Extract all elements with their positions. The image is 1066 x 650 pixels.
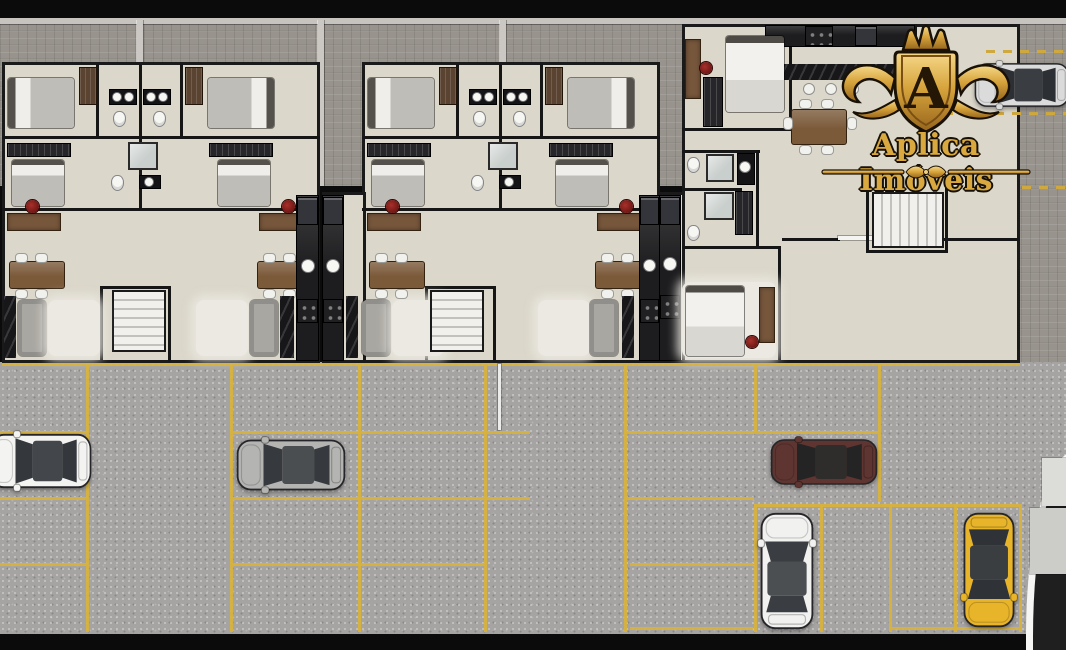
tv-panel: [346, 296, 358, 358]
fridge: [324, 198, 342, 224]
shower: [704, 192, 734, 220]
wall: [866, 188, 869, 252]
wall: [180, 64, 183, 139]
chair: [264, 254, 275, 262]
wall: [782, 238, 840, 241]
bed: [726, 36, 784, 112]
road-dash: [986, 50, 1066, 53]
tv-panel: [280, 296, 294, 358]
chair: [822, 100, 833, 108]
sofa: [250, 300, 278, 356]
closet-strip: [210, 144, 272, 156]
chair: [622, 254, 633, 262]
sofa: [590, 300, 618, 356]
bed: [686, 286, 744, 356]
bed: [568, 78, 634, 128]
wall: [362, 136, 660, 139]
stove: [661, 296, 679, 318]
wall: [2, 136, 320, 139]
stairs: [872, 192, 944, 248]
office-chair: [700, 62, 712, 74]
car-white-hatchback: [0, 430, 92, 492]
driveway-pad: [1042, 458, 1066, 506]
parking-line: [0, 563, 86, 566]
chair: [36, 290, 47, 298]
bed: [372, 160, 424, 206]
wall: [682, 246, 780, 249]
chair: [16, 254, 27, 262]
chair: [16, 290, 27, 298]
wardrobe: [704, 78, 722, 126]
wardrobe: [186, 68, 202, 104]
parking-line: [754, 504, 1019, 507]
parking-line: [230, 497, 530, 500]
shower: [706, 154, 734, 182]
parking-line: [624, 431, 878, 434]
road-dash: [1022, 186, 1066, 189]
sofa: [362, 300, 390, 356]
stove: [298, 300, 317, 322]
chair: [800, 146, 811, 154]
parking-line: [624, 497, 754, 500]
chair: [602, 290, 613, 298]
wall: [425, 286, 496, 289]
wall: [100, 286, 171, 289]
office-chair: [386, 200, 399, 213]
sofa: [18, 300, 46, 356]
rug: [196, 300, 248, 356]
dining-table: [10, 262, 64, 288]
toilet: [688, 226, 699, 240]
parking-line: [230, 563, 484, 566]
driveway-pad: [1030, 508, 1066, 574]
wardrobe: [546, 68, 562, 104]
wall: [96, 64, 99, 139]
parking-line: [0, 497, 86, 500]
wall: [139, 64, 142, 139]
toilet: [472, 176, 483, 190]
fridge: [661, 198, 679, 224]
bed: [12, 160, 64, 206]
stairs: [430, 290, 484, 352]
sink: [159, 93, 167, 101]
chair: [784, 118, 792, 129]
wall: [682, 188, 742, 191]
wall: [100, 288, 103, 362]
car-sedan-street: [974, 60, 1066, 110]
desk: [686, 40, 700, 98]
car-yellow: [960, 512, 1018, 628]
sink: [145, 178, 153, 186]
stairs: [112, 290, 166, 352]
rug: [538, 300, 590, 356]
office-chair: [26, 200, 39, 213]
chair: [376, 254, 387, 262]
parking-line: [889, 504, 892, 632]
chair: [284, 254, 295, 262]
desk: [368, 214, 420, 230]
bed: [368, 78, 434, 128]
parking-line: [820, 504, 823, 632]
desk: [8, 214, 60, 230]
fridge: [298, 198, 317, 224]
chair: [264, 290, 275, 298]
wall: [914, 24, 917, 62]
rug: [48, 300, 100, 356]
sink: [473, 93, 481, 101]
wall: [168, 288, 171, 362]
parking-line: [1019, 504, 1022, 632]
car-white-vertical: [757, 512, 817, 630]
stove: [806, 27, 832, 45]
parking-line: [954, 504, 957, 632]
closet-strip: [8, 144, 70, 156]
toilet: [514, 112, 525, 126]
stove: [324, 300, 342, 322]
car-dark-red-sedan: [770, 436, 878, 488]
office-chair: [620, 200, 633, 213]
bar-stool: [848, 84, 858, 94]
oven: [856, 27, 876, 45]
wall: [493, 288, 496, 362]
sink: [125, 93, 133, 101]
car-silver-sedan: [236, 436, 346, 494]
wall: [362, 208, 660, 211]
bed: [8, 78, 74, 128]
dining-table: [370, 262, 424, 288]
toilet: [114, 112, 125, 126]
closet-strip: [368, 144, 430, 156]
chair: [36, 254, 47, 262]
sink: [113, 93, 121, 101]
sink: [485, 93, 493, 101]
headboard-panel: [760, 288, 774, 342]
parking-line: [630, 627, 753, 630]
wall: [682, 128, 792, 131]
tv-panel: [4, 296, 16, 358]
kitchen-sink: [327, 260, 339, 272]
parking-line: [754, 366, 757, 432]
toilet: [474, 112, 485, 126]
wall: [866, 250, 948, 253]
office-chair: [746, 336, 758, 348]
wall: [945, 188, 948, 252]
sink: [147, 93, 155, 101]
chair: [822, 146, 833, 154]
wall: [2, 208, 320, 211]
wall: [540, 64, 543, 139]
wall: [499, 64, 502, 139]
wardrobe: [736, 192, 752, 234]
parking-line: [86, 366, 89, 632]
chair: [396, 290, 407, 298]
sink: [505, 178, 513, 186]
tv-panel: [622, 296, 634, 358]
parking-line: [230, 431, 530, 434]
bar-stool: [826, 84, 836, 94]
sink: [519, 93, 527, 101]
dining-table: [792, 110, 846, 144]
toilet: [112, 176, 123, 190]
wall: [778, 246, 781, 363]
bed: [208, 78, 274, 128]
bed: [218, 160, 270, 206]
office-chair: [282, 200, 295, 213]
parking-asphalt: [0, 362, 1066, 634]
road-dash: [944, 112, 1066, 115]
parking-line: [2, 363, 1020, 366]
chair: [602, 254, 613, 262]
wall: [456, 64, 459, 139]
wardrobe: [440, 68, 456, 104]
wall: [756, 150, 759, 248]
toilet: [154, 112, 165, 126]
street-right-pavers: [1012, 186, 1066, 372]
bar-counter: [766, 64, 914, 80]
kitchen-sink: [664, 258, 676, 270]
floorplan-render: A Aplica Imóveis: [0, 0, 1066, 650]
stove: [641, 300, 658, 322]
parking-line: [878, 366, 881, 502]
light-post: [498, 364, 501, 430]
kitchen-counter: [766, 26, 914, 46]
chair: [800, 100, 811, 108]
shower: [488, 142, 518, 170]
kitchen-sink: [644, 260, 655, 271]
chair: [376, 290, 387, 298]
sink: [740, 162, 750, 172]
bed: [556, 160, 608, 206]
chair: [396, 254, 407, 262]
fridge: [641, 198, 658, 224]
wardrobe: [80, 68, 96, 104]
toilet: [688, 158, 699, 172]
kitchen-sink: [302, 260, 314, 272]
chair: [848, 118, 856, 129]
bar-stool: [804, 84, 814, 94]
parking-line: [630, 563, 753, 566]
wall: [682, 150, 760, 153]
sink: [507, 93, 515, 101]
shower: [128, 142, 158, 170]
closet-strip: [550, 144, 612, 156]
